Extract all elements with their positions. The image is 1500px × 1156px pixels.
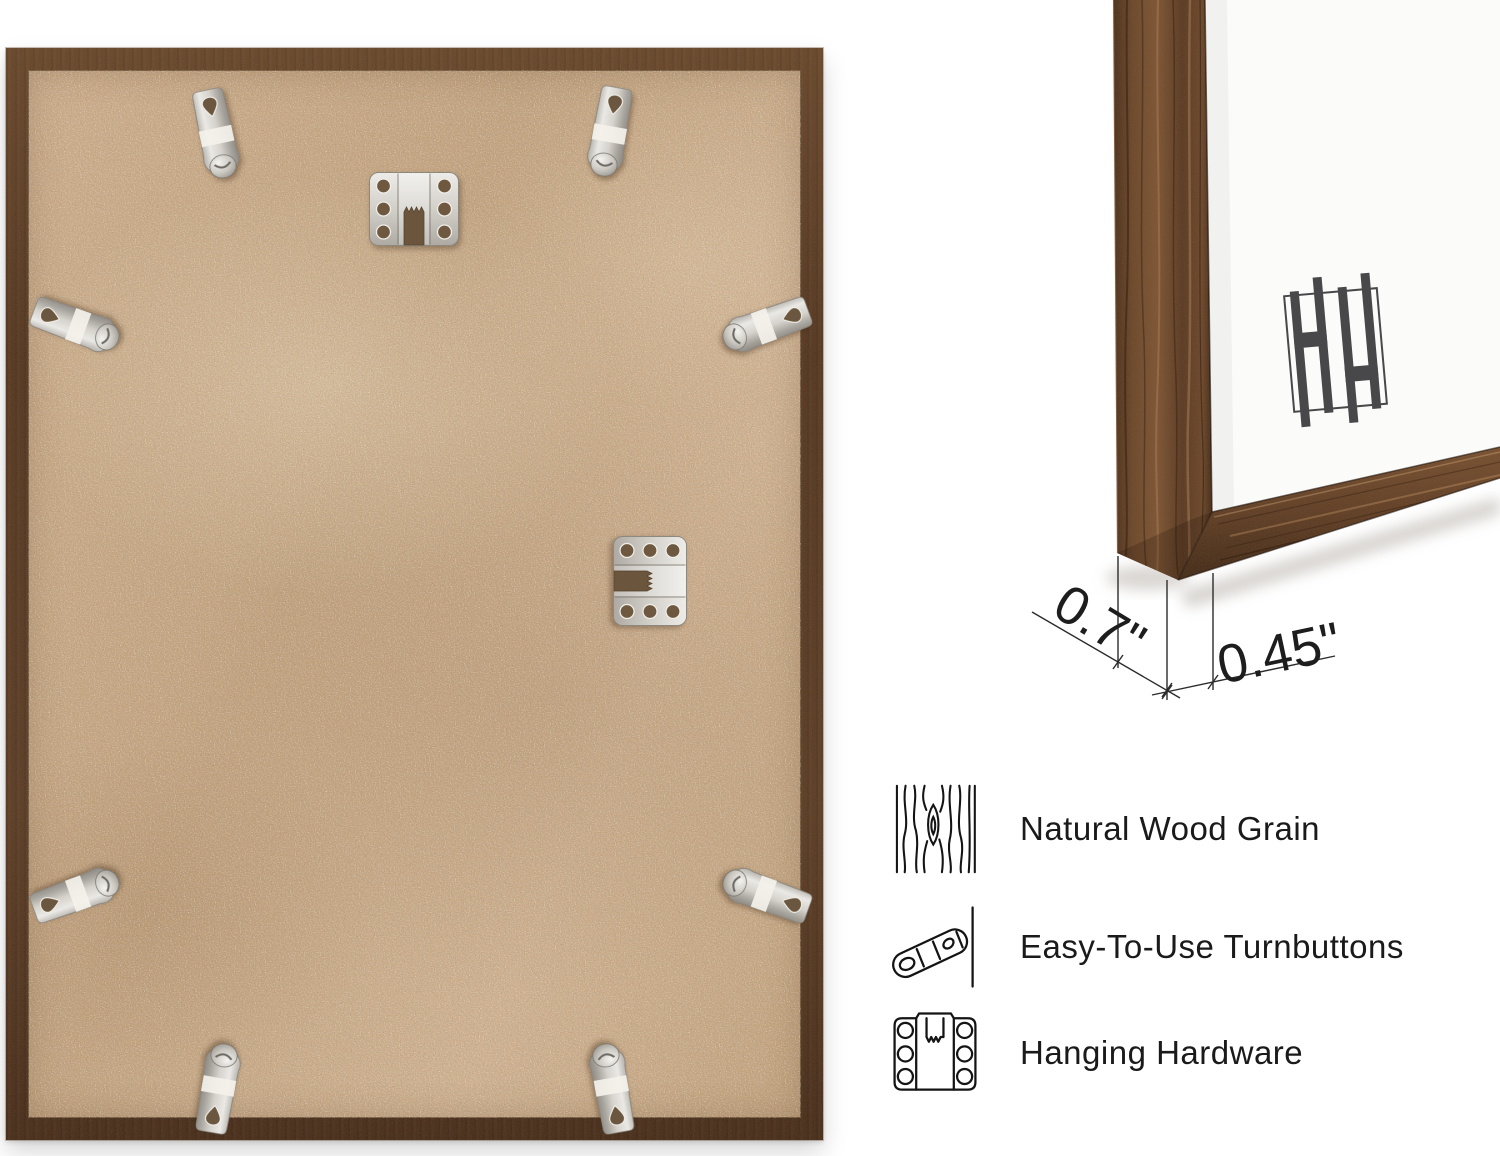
mdf-back-panel — [28, 70, 801, 1118]
frame-back-view — [6, 48, 823, 1140]
sawtooth-hanger — [612, 535, 688, 627]
feature-row-hanging-hardware: Hanging Hardware — [888, 1008, 1303, 1098]
feature-row-turnbuttons: Easy-To-Use Turnbuttons — [888, 902, 1404, 992]
hanging-hardware-icon — [888, 1008, 982, 1098]
sawtooth-hanger — [368, 171, 460, 247]
frame-corner-detail: 0.7" 0.45" — [1030, 0, 1500, 720]
feature-label: Easy-To-Use Turnbuttons — [1020, 928, 1404, 966]
feature-row-wood-grain: Natural Wood Grain — [888, 784, 1320, 874]
wood-grain-icon — [888, 784, 982, 874]
mat-board — [1205, 0, 1500, 512]
product-image: 0.7" 0.45" — [0, 0, 1500, 1156]
turnbutton-icon — [888, 902, 982, 992]
dimension-face-width-label: 0.45" — [1212, 611, 1346, 696]
feature-label: Natural Wood Grain — [1020, 810, 1320, 848]
frame-stile — [1110, 0, 1220, 600]
feature-label: Hanging Hardware — [1020, 1034, 1303, 1072]
